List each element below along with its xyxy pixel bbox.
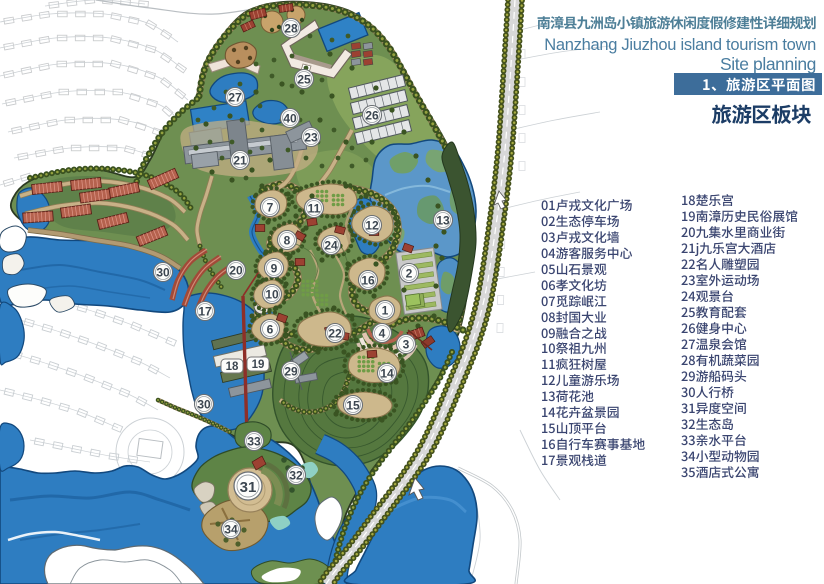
svg-text:10: 10	[265, 287, 279, 301]
svg-text:30: 30	[197, 397, 211, 411]
svg-text:19: 19	[252, 359, 265, 371]
svg-text:15: 15	[346, 398, 360, 412]
svg-text:31: 31	[240, 479, 257, 496]
svg-text:25: 25	[297, 72, 311, 86]
svg-text:28: 28	[284, 21, 298, 35]
svg-text:12: 12	[365, 218, 379, 232]
svg-text:33: 33	[247, 434, 261, 448]
svg-text:13: 13	[436, 213, 450, 227]
svg-text:27: 27	[228, 90, 242, 104]
svg-text:22: 22	[328, 326, 342, 340]
svg-text:29: 29	[284, 364, 298, 378]
svg-text:26: 26	[365, 108, 379, 122]
svg-text:3: 3	[403, 337, 410, 351]
svg-text:40: 40	[283, 111, 297, 125]
svg-text:20: 20	[229, 263, 243, 277]
svg-text:11: 11	[308, 201, 321, 215]
svg-text:2: 2	[406, 266, 413, 280]
svg-text:18: 18	[226, 361, 239, 373]
svg-text:1: 1	[382, 303, 389, 317]
svg-text:23: 23	[304, 130, 318, 144]
svg-text:8: 8	[284, 233, 291, 247]
svg-text:34: 34	[224, 522, 238, 536]
svg-text:14: 14	[380, 366, 394, 380]
svg-text:9: 9	[271, 261, 278, 275]
svg-text:4: 4	[379, 326, 386, 340]
svg-text:16: 16	[361, 273, 375, 287]
svg-text:7: 7	[267, 200, 274, 214]
svg-text:32: 32	[289, 468, 303, 482]
svg-text:6: 6	[267, 322, 274, 336]
svg-text:30: 30	[156, 265, 170, 279]
svg-text:17: 17	[198, 304, 212, 318]
svg-text:24: 24	[324, 238, 338, 252]
svg-text:21: 21	[233, 153, 247, 167]
